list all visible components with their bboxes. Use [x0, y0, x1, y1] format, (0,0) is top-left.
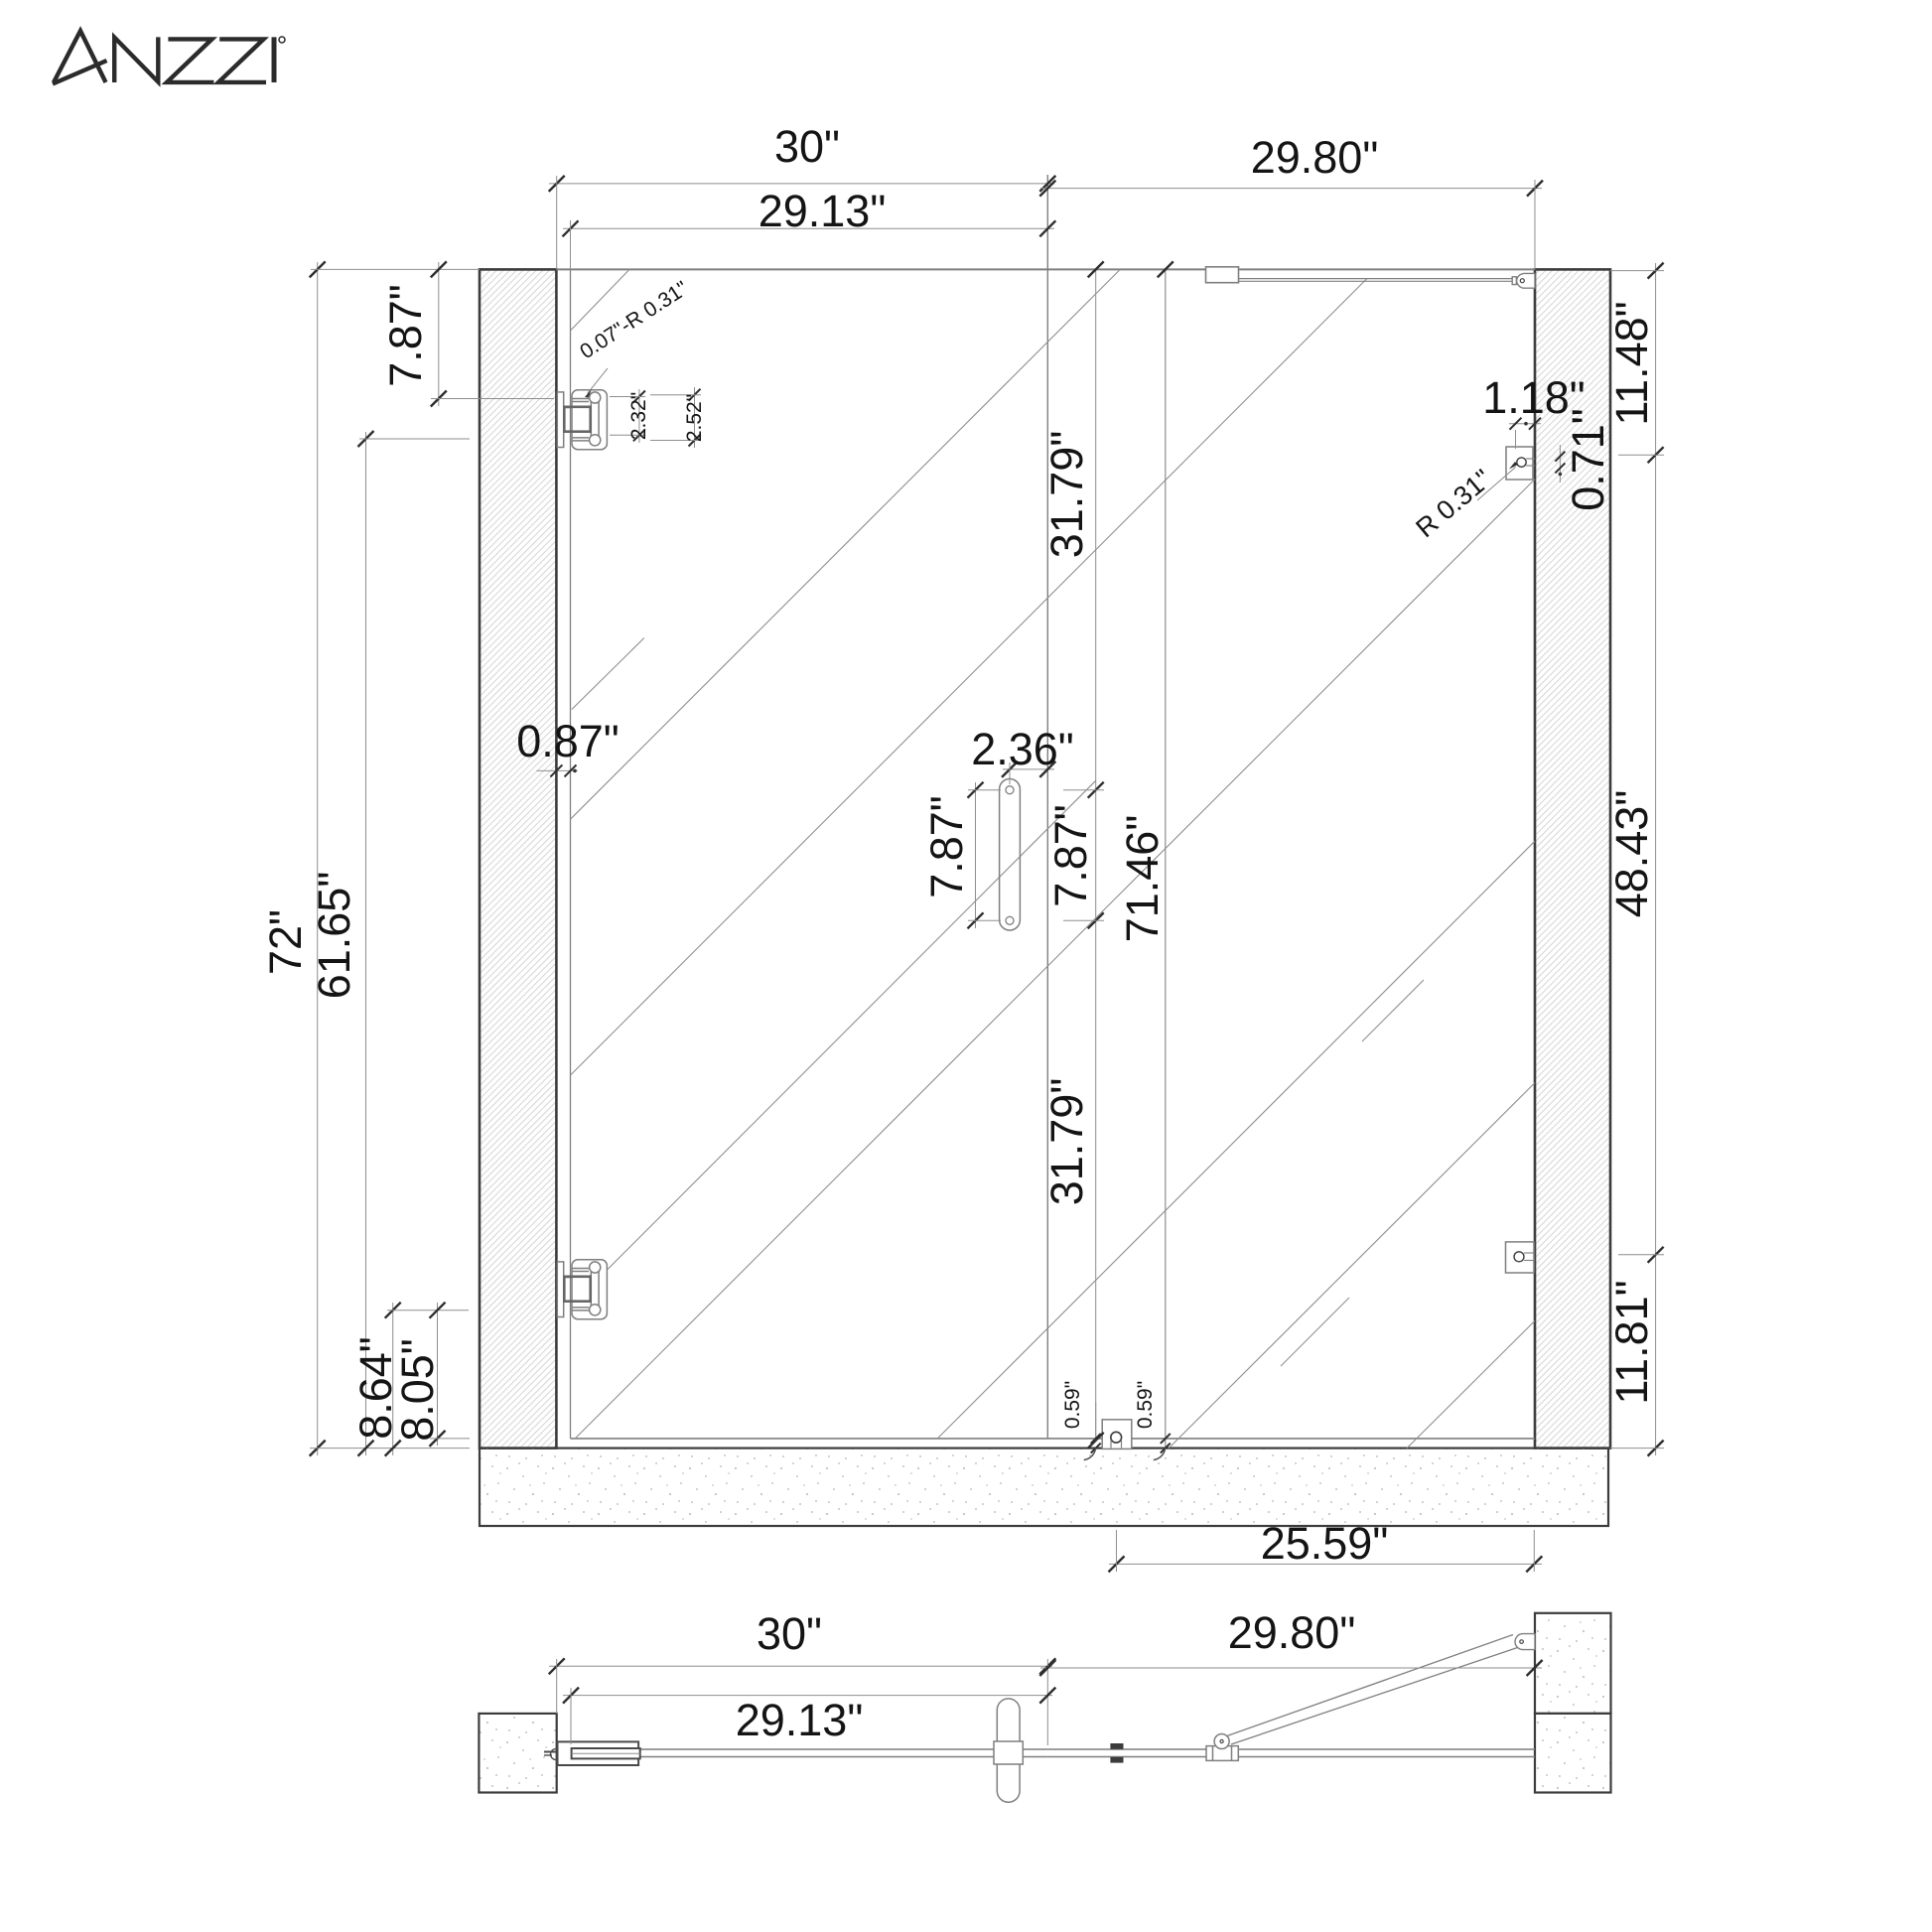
svg-text:61.65": 61.65": [309, 872, 359, 1000]
svg-text:0.59": 0.59": [1061, 1381, 1084, 1429]
svg-text:30": 30": [774, 121, 840, 172]
svg-text:7.87": 7.87": [921, 795, 972, 898]
svg-text:48.43": 48.43": [1606, 790, 1657, 918]
svg-text:29.13": 29.13": [759, 186, 887, 236]
svg-text:29.80": 29.80": [1251, 132, 1379, 183]
svg-text:25.59": 25.59": [1261, 1518, 1389, 1569]
svg-text:31.79": 31.79": [1041, 431, 1092, 559]
svg-text:2.52": 2.52": [683, 394, 706, 442]
svg-text:0.71": 0.71": [1563, 408, 1613, 511]
svg-text:30": 30": [757, 1608, 822, 1659]
svg-text:7.87": 7.87": [380, 284, 431, 387]
svg-text:0.87": 0.87": [516, 716, 620, 766]
svg-text:71.46": 71.46": [1117, 815, 1168, 943]
svg-text:72": 72": [260, 909, 311, 975]
svg-text:31.79": 31.79": [1041, 1078, 1092, 1206]
svg-text:29.13": 29.13": [736, 1695, 864, 1745]
svg-text:11.81": 11.81": [1606, 1280, 1657, 1404]
svg-text:8.05": 8.05": [392, 1338, 443, 1442]
svg-text:2.36": 2.36": [971, 724, 1074, 774]
svg-text:0.59": 0.59": [1134, 1381, 1157, 1429]
svg-text:11.48": 11.48": [1606, 301, 1657, 425]
svg-text:29.80": 29.80": [1228, 1607, 1356, 1658]
svg-text:7.87": 7.87": [1045, 804, 1096, 907]
svg-text:2.32": 2.32": [627, 392, 650, 440]
